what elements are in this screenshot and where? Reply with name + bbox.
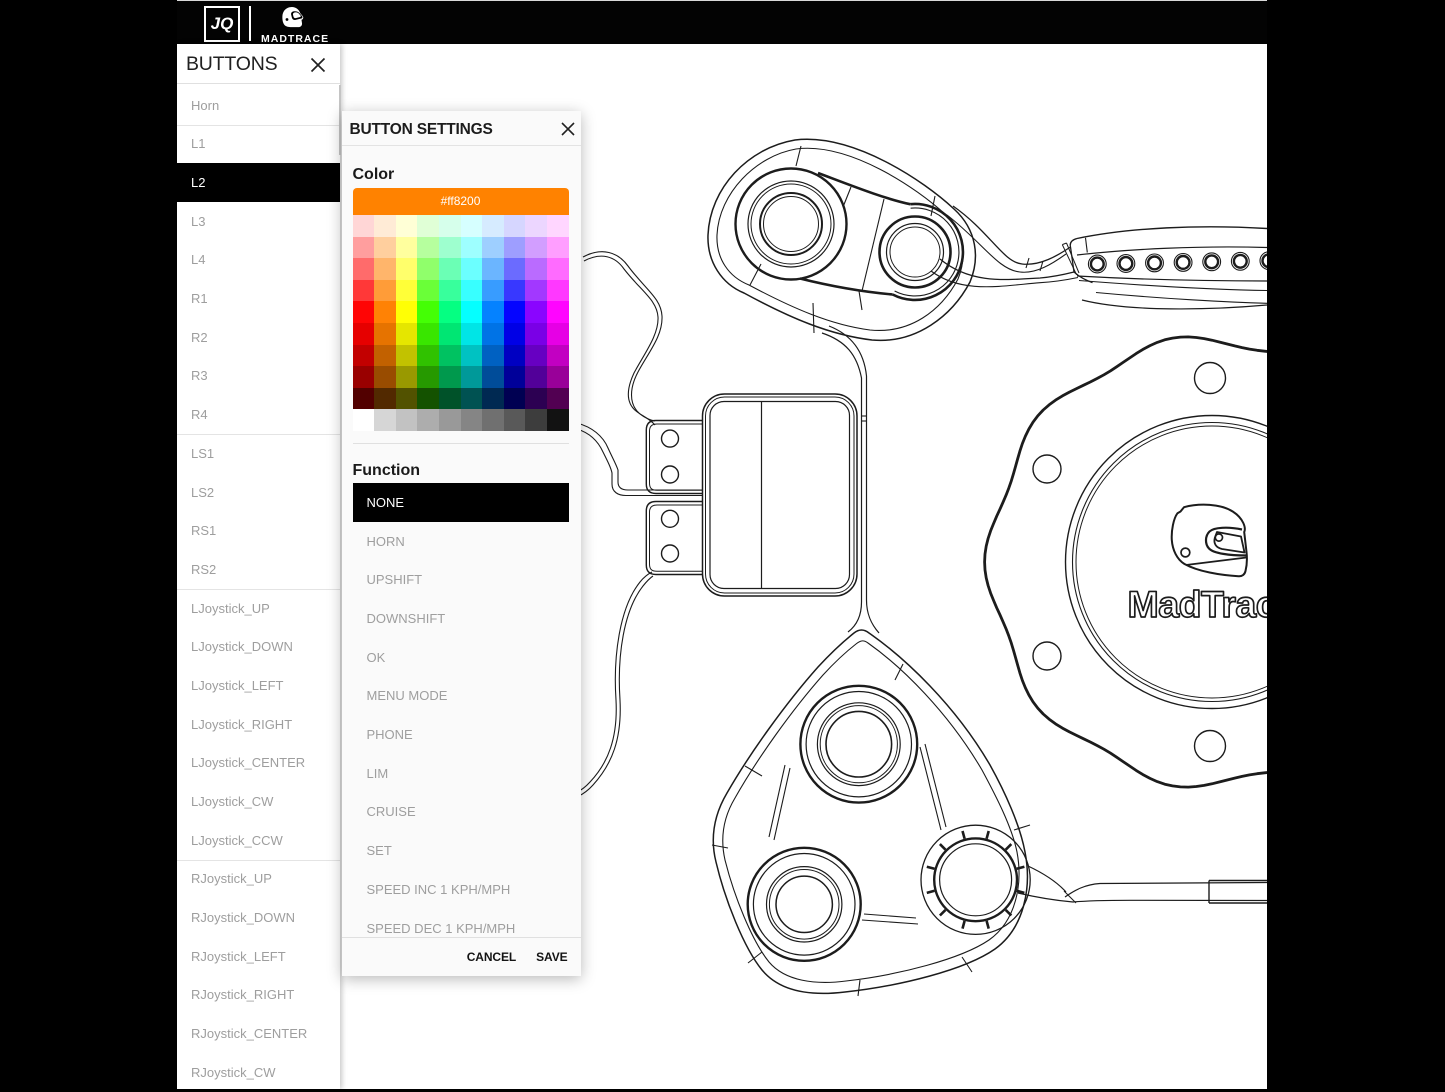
svg-text:MadTrace: MadTrace: [1128, 583, 1268, 625]
